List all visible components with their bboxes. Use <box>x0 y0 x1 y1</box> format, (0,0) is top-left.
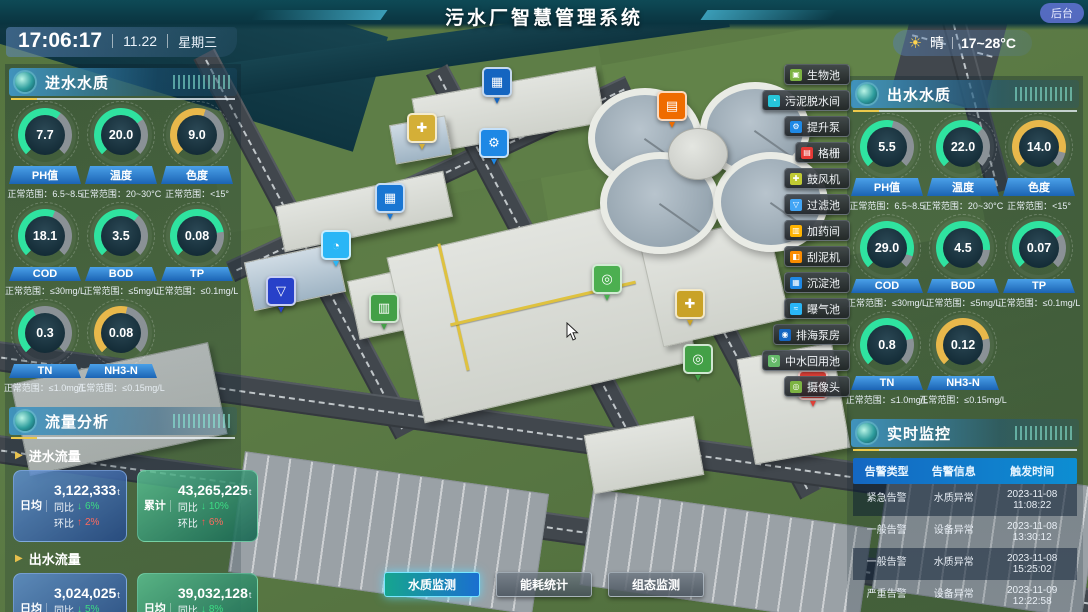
marker-chevron-icon: ▾ <box>695 373 701 381</box>
gauge-label: 色度 <box>161 166 233 184</box>
gauge-value: 7.7 <box>25 115 65 155</box>
map-marker[interactable]: ✚▾ <box>677 289 703 326</box>
device-button[interactable]: ▦沉淀池 <box>784 272 850 293</box>
left-panel: 进水水质 7.7PH值正常范围：6.5~8.520.0温度正常范围：20~30°… <box>5 64 241 612</box>
gauge: 0.07TP正常范围：≤0.1mg/L <box>1001 221 1077 309</box>
alarm-row[interactable]: 一般告警设备异常2023-11-08 13:30:12 <box>853 516 1077 548</box>
gauge-normal-range: 正常范围：≤1.0mg/L <box>4 381 86 394</box>
section-title: 流量分析 <box>45 411 109 432</box>
gauge-value: 0.08 <box>101 313 141 353</box>
triangle-icon: ▶ <box>15 450 23 461</box>
inlet-flow-subheader: ▶ 进水流量 <box>15 446 231 465</box>
gauge-ring: 0.08 <box>170 209 224 263</box>
flow-card: 累计43,265,225t同比↓10%环比↑6% <box>137 470 259 542</box>
device-icon: ✚ <box>790 173 802 185</box>
gauge-ring: 0.08 <box>94 306 148 360</box>
divider <box>112 34 113 48</box>
device-button[interactable]: ▣生物池 <box>784 64 850 85</box>
divider <box>952 37 953 49</box>
triangle-icon: ▶ <box>15 553 23 564</box>
dots-texture <box>173 75 231 89</box>
gauge: 0.12NH3-N正常范围：≤0.15mg/L <box>925 318 1001 406</box>
yoy-value: 6% <box>85 501 99 512</box>
gauge-ring: 3.5 <box>94 209 148 263</box>
outlet-flow-subheader: ▶ 出水流量 <box>15 549 231 568</box>
gauge-normal-range: 正常范围：≤1.0mg/L <box>846 393 928 406</box>
gauge-value: 20.0 <box>101 115 141 155</box>
alarm-cell: 紧急告警 <box>853 489 920 511</box>
section-orb-icon <box>15 411 35 431</box>
flow-card-body: 3,024,025t同比↓5%环比↑3% <box>54 585 120 612</box>
gauge-ring: 22.0 <box>936 120 990 174</box>
sun-icon: ☀ <box>909 34 922 52</box>
device-button-list: ▣生物池◔污泥脱水间⚙提升泵▤格栅✚鼓风机▽过滤池▥加药间◧刮泥机▦沉淀池≈曝气… <box>762 64 850 397</box>
flow-unit: t <box>249 487 252 497</box>
gauge-ring: 0.3 <box>18 306 72 360</box>
device-label: 污泥脱水间 <box>785 93 840 109</box>
gauge-value: 0.12 <box>943 325 983 365</box>
gauge: 18.1COD正常范围：≤30mg/L <box>7 209 83 297</box>
yoy-label: 同比 <box>178 499 198 514</box>
gauge-normal-range: 正常范围：<15° <box>165 187 229 200</box>
flow-unit: t <box>117 487 120 497</box>
device-button[interactable]: ◔污泥脱水间 <box>762 90 850 111</box>
section-orb-icon <box>15 72 35 92</box>
flow-card: 日均39,032,128t同比↓8%环比↑6% <box>137 573 259 612</box>
gauge-label: 色度 <box>1003 178 1075 196</box>
gauge-label: 温度 <box>85 166 157 184</box>
gauge: 0.8TN正常范围：≤1.0mg/L <box>849 318 925 406</box>
mom-row: 环比↑2% <box>54 515 120 530</box>
mouse-cursor <box>566 322 580 342</box>
alarm-column-header: 告警类型 <box>853 458 920 484</box>
device-label: 加药间 <box>807 223 840 239</box>
subheader-label: 进水流量 <box>29 446 81 465</box>
gauge-label: TP <box>161 267 233 281</box>
gauge-normal-range: 正常范围：20~30°C <box>923 199 1003 212</box>
weather-condition: 晴 <box>930 33 944 53</box>
alarm-table: 告警类型告警信息触发时间 紧急告警水质异常2023-11-08 11:08:22… <box>853 458 1077 612</box>
gauge-value: 14.0 <box>1019 127 1059 167</box>
arrow-up-icon: ↑ <box>201 517 206 528</box>
outlet-quality-header: 出水水质 <box>851 80 1079 108</box>
gauge-ring: 0.12 <box>936 318 990 372</box>
right-panel: 出水水质 5.5PH值正常范围：6.5~8.522.0温度正常范围：20~30°… <box>847 76 1083 612</box>
clock-date: 11.22 <box>123 33 157 49</box>
gauge: 5.5PH值正常范围：6.5~8.5 <box>849 120 925 212</box>
dots-texture <box>1015 426 1073 440</box>
device-label: 过滤池 <box>807 197 840 213</box>
gauge-value: 29.0 <box>867 228 907 268</box>
alarm-cell: 水质异常 <box>920 489 987 511</box>
alarm-cell: 一般告警 <box>853 553 920 575</box>
yoy-row: 同比↓5% <box>54 602 120 612</box>
map-marker[interactable]: ◔▾ <box>323 230 349 267</box>
device-icon: ▣ <box>790 69 802 81</box>
yoy-row: 同比↓6% <box>54 499 120 514</box>
flow-value: 3,122,333t <box>54 482 120 498</box>
mom-label: 环比 <box>54 515 74 530</box>
alarm-column-header: 告警信息 <box>920 458 987 484</box>
gauge-value: 5.5 <box>867 127 907 167</box>
gauge-normal-range: 正常范围：20~30°C <box>81 187 161 200</box>
marker-chevron-icon: ▾ <box>669 120 675 128</box>
gauge-normal-range: 正常范围：<15° <box>1007 199 1071 212</box>
device-label: 沉淀池 <box>807 275 840 291</box>
alarm-table-header: 告警类型告警信息触发时间 <box>853 458 1077 484</box>
device-button[interactable]: ↻中水回用池 <box>762 350 850 371</box>
temperature-range: 17~28°C <box>961 35 1016 51</box>
flow-card-tag: 累计 <box>144 500 171 513</box>
clock-time: 17:06:17 <box>18 29 102 53</box>
map-marker[interactable]: ▥▾ <box>371 293 397 330</box>
dashboard: ▦▾▤▾✚▾⚙▾▦▾◔▾▽▾▥▾◎▾✚▾◎▾◧▾ 污水厂智慧管理系统 17:06… <box>0 0 1088 612</box>
device-label: 生物池 <box>807 67 840 83</box>
flow-card: 日均3,024,025t同比↓5%环比↑3% <box>13 573 127 612</box>
section-underline <box>11 437 235 439</box>
inlet-flow-cards: 日均3,122,333t同比↓6%环比↑2%累计43,265,225t同比↓10… <box>5 470 241 542</box>
backend-button[interactable]: 后台 <box>1040 3 1084 23</box>
arrow-down-icon: ↓ <box>77 604 82 612</box>
device-label: 格栅 <box>818 145 840 161</box>
flow-card: 日均3,122,333t同比↓6%环比↑2% <box>13 470 127 542</box>
outlet-gauge-grid: 5.5PH值正常范围：6.5~8.522.0温度正常范围：20~30°C14.0… <box>847 112 1083 415</box>
flow-card-tag: 日均 <box>144 603 171 612</box>
bottom-tab[interactable]: 水质监测 <box>384 572 480 597</box>
mom-label: 环比 <box>178 515 198 530</box>
device-label: 鼓风机 <box>807 171 840 187</box>
device-icon: ⚙ <box>790 121 802 133</box>
device-label: 排海泵房 <box>796 327 840 343</box>
yoy-label: 同比 <box>178 602 198 612</box>
gauge-ring: 4.5 <box>936 221 990 275</box>
gauge-label: PH值 <box>851 178 923 196</box>
device-button[interactable]: ▤格栅 <box>795 142 850 163</box>
gauge-value: 0.8 <box>867 325 907 365</box>
gauge-ring: 9.0 <box>170 108 224 162</box>
section-title: 出水水质 <box>887 84 951 105</box>
device-icon: ◉ <box>779 329 791 341</box>
gauge: 0.08TP正常范围：≤0.1mg/L <box>159 209 235 297</box>
mom-value: 6% <box>209 517 223 528</box>
bottom-tab[interactable]: 组态监测 <box>608 572 704 597</box>
section-title: 实时监控 <box>887 423 951 444</box>
device-button[interactable]: ⚙提升泵 <box>784 116 850 137</box>
gauge-normal-range: 正常范围：≤0.1mg/L <box>998 296 1080 309</box>
gauge: 9.0色度正常范围：<15° <box>159 108 235 200</box>
marker-chevron-icon: ▾ <box>381 322 387 330</box>
device-button[interactable]: ◧刮泥机 <box>784 246 850 267</box>
gauge-ring: 0.8 <box>860 318 914 372</box>
gauge-normal-range: 正常范围：≤0.15mg/L <box>77 381 164 394</box>
gauge: 14.0色度正常范围：<15° <box>1001 120 1077 212</box>
gauge-label: TN <box>9 364 81 378</box>
device-button[interactable]: ▽过滤池 <box>784 194 850 215</box>
outlet-flow-cards: 日均3,024,025t同比↓5%环比↑3%日均39,032,128t同比↓8%… <box>5 573 241 612</box>
device-label: 中水回用池 <box>785 353 840 369</box>
gauge-ring: 7.7 <box>18 108 72 162</box>
gauge-value: 3.5 <box>101 216 141 256</box>
divider <box>167 34 168 48</box>
alarm-cell: 设备异常 <box>920 585 987 607</box>
yoy-value: 5% <box>85 604 99 612</box>
marker-chevron-icon: ▾ <box>387 212 393 220</box>
gauge: 22.0温度正常范围：20~30°C <box>925 120 1001 212</box>
gauge-normal-range: 正常范围：6.5~8.5 <box>849 199 924 212</box>
gauge-label: TP <box>1003 279 1075 293</box>
subheader-label: 出水流量 <box>29 549 81 568</box>
gauge-label: COD <box>851 279 923 293</box>
device-icon: ▽ <box>790 199 802 211</box>
device-label: 摄像头 <box>807 379 840 395</box>
gauge-ring: 0.07 <box>1012 221 1066 275</box>
flow-card-body: 3,122,333t同比↓6%环比↑2% <box>54 482 120 530</box>
gauge: 3.5BOD正常范围：≤5mg/L <box>83 209 159 297</box>
alarm-cell: 设备异常 <box>920 521 987 543</box>
yoy-row: 同比↓10% <box>178 499 252 514</box>
alarm-cell: 2023-11-08 13:30:12 <box>987 521 1077 543</box>
gauge-value: 0.3 <box>25 313 65 353</box>
alarm-cell: 2023-11-08 15:25:02 <box>987 553 1077 575</box>
gauge-label: BOD <box>85 267 157 281</box>
device-button[interactable]: ✚鼓风机 <box>784 168 850 189</box>
alarm-column-header: 触发时间 <box>987 458 1077 484</box>
gauge-label: NH3-N <box>85 364 157 378</box>
device-label: 刮泥机 <box>807 249 840 265</box>
flow-card-tag: 日均 <box>20 603 47 612</box>
device-icon: ▤ <box>801 147 813 159</box>
gauge-normal-range: 正常范围：≤5mg/L <box>926 296 1001 309</box>
alarm-table-body: 紧急告警水质异常2023-11-08 11:08:22一般告警设备异常2023-… <box>853 484 1077 612</box>
map-marker[interactable]: ▦▾ <box>484 67 510 104</box>
device-button[interactable]: ◉排海泵房 <box>773 324 850 345</box>
alarm-row[interactable]: 紧急告警水质异常2023-11-08 11:08:22 <box>853 484 1077 516</box>
yoy-row: 同比↓8% <box>178 602 252 612</box>
flow-unit: t <box>249 590 252 600</box>
flow-card-body: 43,265,225t同比↓10%环比↑6% <box>178 482 252 530</box>
marker-chevron-icon: ▾ <box>604 293 610 301</box>
flow-value: 43,265,225t <box>178 482 252 498</box>
device-icon: ▦ <box>790 277 802 289</box>
device-icon: ≈ <box>790 303 802 315</box>
device-button[interactable]: ◎摄像头 <box>784 376 850 397</box>
device-icon: ◎ <box>790 381 802 393</box>
gauge-value: 18.1 <box>25 216 65 256</box>
gauge: 7.7PH值正常范围：6.5~8.5 <box>7 108 83 200</box>
map-marker[interactable]: ▽▾ <box>268 276 294 313</box>
gauge-label: NH3-N <box>927 376 999 390</box>
device-icon: ◧ <box>790 251 802 263</box>
device-icon: ▥ <box>790 225 802 237</box>
gauge-value: 4.5 <box>943 228 983 268</box>
gauge: 0.3TN正常范围：≤1.0mg/L <box>7 306 83 394</box>
marker-chevron-icon: ▾ <box>333 259 339 267</box>
yoy-value: 10% <box>209 501 229 512</box>
clock-weekday: 星期三 <box>178 32 217 51</box>
gauge-ring: 18.1 <box>18 209 72 263</box>
section-orb-icon <box>857 423 877 443</box>
flow-analysis-header: 流量分析 <box>9 407 237 435</box>
device-label: 曝气池 <box>807 301 840 317</box>
marker-chevron-icon: ▾ <box>810 399 816 407</box>
flow-card-tag: 日均 <box>20 500 47 513</box>
mom-row: 环比↑6% <box>178 515 252 530</box>
alarm-row[interactable]: 一般告警水质异常2023-11-08 15:25:02 <box>853 548 1077 580</box>
gauge-normal-range: 正常范围：≤0.15mg/L <box>919 393 1006 406</box>
gauge-label: 温度 <box>927 178 999 196</box>
gauge-normal-range: 正常范围：≤0.1mg/L <box>156 284 238 297</box>
alarm-row[interactable]: 严重告警设备异常2023-11-09 12:22:58 <box>853 580 1077 612</box>
alarm-cell: 严重告警 <box>853 585 920 607</box>
arrow-up-icon: ↑ <box>77 517 82 528</box>
gauge-normal-range: 正常范围：≤5mg/L <box>84 284 159 297</box>
page-title: 污水厂智慧管理系统 <box>0 3 1088 30</box>
mom-value: 2% <box>85 517 99 528</box>
device-button[interactable]: ▥加药间 <box>784 220 850 241</box>
arrow-down-icon: ↓ <box>201 501 206 512</box>
flow-value: 3,024,025t <box>54 585 120 601</box>
section-underline <box>853 449 1077 451</box>
gauge-label: PH值 <box>9 166 81 184</box>
gauge-value: 0.08 <box>177 216 217 256</box>
gauge-label: TN <box>851 376 923 390</box>
gauge-ring: 5.5 <box>860 120 914 174</box>
yoy-label: 同比 <box>54 602 74 612</box>
tank-hub-building <box>668 128 728 180</box>
device-icon: ↻ <box>768 355 780 367</box>
gauge-normal-range: 正常范围：6.5~8.5 <box>7 187 82 200</box>
inlet-gauge-grid: 7.7PH值正常范围：6.5~8.520.0温度正常范围：20~30°C9.0色… <box>5 100 241 403</box>
realtime-monitor-header: 实时监控 <box>851 419 1079 447</box>
arrow-down-icon: ↓ <box>77 501 82 512</box>
device-button[interactable]: ≈曝气池 <box>784 298 850 319</box>
bottom-tab-bar: 水质监测能耗统计组态监测 <box>384 572 704 597</box>
device-label: 提升泵 <box>807 119 840 135</box>
map-marker[interactable]: ▦▾ <box>377 183 403 220</box>
map-marker[interactable]: ✚▾ <box>409 113 435 150</box>
gauge: 0.08NH3-N正常范围：≤0.15mg/L <box>83 306 159 394</box>
marker-chevron-icon: ▾ <box>419 142 425 150</box>
flow-card-body: 39,032,128t同比↓8%环比↑6% <box>178 585 252 612</box>
gauge-ring: 29.0 <box>860 221 914 275</box>
bottom-tab[interactable]: 能耗统计 <box>496 572 592 597</box>
section-orb-icon <box>857 84 877 104</box>
section-title: 进水水质 <box>45 72 109 93</box>
marker-chevron-icon: ▾ <box>687 318 693 326</box>
marker-chevron-icon: ▾ <box>278 305 284 313</box>
gauge-value: 22.0 <box>943 127 983 167</box>
inlet-quality-header: 进水水质 <box>9 68 237 96</box>
marker-chevron-icon: ▾ <box>491 157 497 165</box>
map-marker[interactable]: ⚙▾ <box>481 128 507 165</box>
gauge-value: 9.0 <box>177 115 217 155</box>
gauge: 4.5BOD正常范围：≤5mg/L <box>925 221 1001 309</box>
alarm-cell: 水质异常 <box>920 553 987 575</box>
map-marker[interactable]: ◎▾ <box>685 344 711 381</box>
gauge-label: COD <box>9 267 81 281</box>
alarm-cell: 2023-11-09 12:22:58 <box>987 585 1077 607</box>
marker-chevron-icon: ▾ <box>494 96 500 104</box>
map-marker[interactable]: ◎▾ <box>594 264 620 301</box>
alarm-cell: 一般告警 <box>853 521 920 543</box>
gauge: 29.0COD正常范围：≤30mg/L <box>849 221 925 309</box>
gauge: 20.0温度正常范围：20~30°C <box>83 108 159 200</box>
gauge-normal-range: 正常范围：≤30mg/L <box>5 284 85 297</box>
dots-texture <box>173 414 231 428</box>
flow-unit: t <box>117 590 120 600</box>
alarm-cell: 2023-11-08 11:08:22 <box>987 489 1077 511</box>
gauge-ring: 14.0 <box>1012 120 1066 174</box>
clock-panel: 17:06:17 11.22 星期三 <box>6 27 237 57</box>
gauge-normal-range: 正常范围：≤30mg/L <box>847 296 927 309</box>
yoy-value: 8% <box>209 604 223 612</box>
gauge-ring: 20.0 <box>94 108 148 162</box>
map-marker[interactable]: ▤▾ <box>659 91 685 128</box>
gauge-label: BOD <box>927 279 999 293</box>
gauge-value: 0.07 <box>1019 228 1059 268</box>
dots-texture <box>1015 87 1073 101</box>
arrow-down-icon: ↓ <box>201 604 206 612</box>
flow-value: 39,032,128t <box>178 585 252 601</box>
yoy-label: 同比 <box>54 499 74 514</box>
device-icon: ◔ <box>768 95 780 107</box>
weather-panel: ☀ 晴 17~28°C <box>893 30 1032 56</box>
